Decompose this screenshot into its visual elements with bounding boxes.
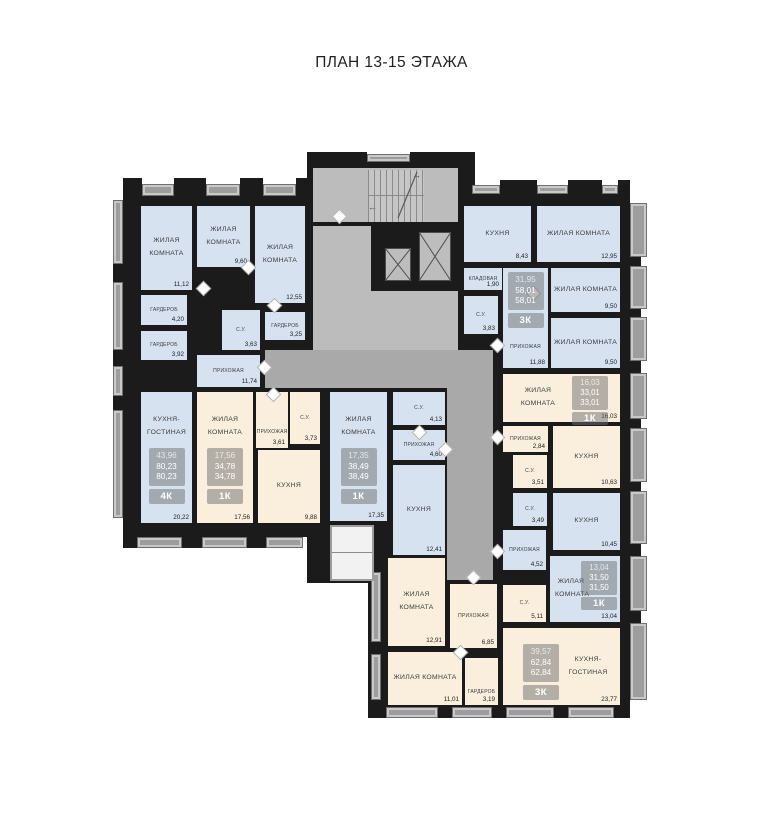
corridor (447, 350, 493, 580)
room-apt4k-hallway: ПРИХОЖАЯ 11,74 (197, 355, 260, 387)
room-apt4k-kitchen-living: КУХНЯ-ГОСТИНАЯ 20,22 43,96 80,23 80,23 4… (141, 392, 192, 523)
room-name-label: ЖИЛАЯ КОМНАТА (517, 385, 559, 411)
room-apt3ka-living-1: ЖИЛАЯ КОМНАТА 12,95 (537, 206, 620, 262)
elevator-shaft-small (385, 248, 411, 281)
room-area-value: 23,77 (601, 696, 617, 703)
room-name-label: КУХНЯ (407, 504, 431, 517)
window-strip (113, 200, 123, 264)
apartment-areas: 17,56 34,78 34,78 (207, 448, 243, 486)
total-area-value: 33,01 (573, 388, 607, 398)
room-area-value: 13,04 (601, 613, 617, 620)
wall-pier (174, 178, 206, 196)
room-area-value: 11,12 (174, 281, 189, 288)
wall-pier (630, 257, 641, 266)
room-area-value: 12,95 (601, 253, 617, 260)
room-area-value: 20,22 (173, 514, 189, 521)
window-strip (602, 185, 618, 194)
room-apt3kb-living-2: ЖИЛАЯ КОМНАТА 11,01 (388, 652, 462, 705)
stair-down-arrow: ← (368, 202, 377, 212)
elevator-lobby (313, 291, 458, 356)
wall-pier (630, 309, 641, 317)
room-area-value: 4,20 (172, 316, 184, 323)
apartment-type-label: 1К (581, 597, 617, 610)
room-area-value: 12,41 (426, 546, 442, 553)
wall-pier (296, 178, 312, 196)
room-area-value: 3,61 (273, 439, 285, 446)
apartment-type-label: 3К (523, 685, 559, 700)
balcony-slab (630, 491, 647, 544)
room-area-value: 3,73 (305, 435, 317, 442)
room-area-value: 9,50 (605, 303, 617, 310)
room-name-label: С.У. (520, 600, 530, 606)
room-apt1kd-kitchen: КУХНЯ 10,45 (553, 493, 620, 550)
room-apt4k-living-2: ЖИЛАЯ КОМНАТА 9,60 (197, 206, 250, 267)
room-area-value: 11,74 (242, 378, 257, 385)
wall-pier (113, 396, 123, 410)
living-area-value: 17,35 (342, 451, 376, 462)
apartment-areas: 43,96 80,23 80,23 (149, 448, 185, 486)
window-strip (206, 184, 240, 196)
window-strip (142, 184, 174, 196)
window-strip (472, 185, 500, 194)
room-area-value: 9,88 (305, 514, 317, 521)
wall-pier (123, 178, 142, 196)
room-name-label: ЖИЛАЯ КОМНАТА (198, 224, 248, 250)
apartment-type-label: 4К (149, 489, 185, 504)
room-area-value: 3,49 (532, 517, 544, 524)
room-area-value: 12,55 (286, 294, 302, 301)
room-name-label: ЖИЛАЯ КОМНАТА (142, 235, 190, 261)
living-area-value: 39,57 (524, 647, 558, 658)
room-apt3kb-hallway: ПРИХОЖАЯ 6,85 (450, 584, 497, 648)
room-apt3ka-living-3: ЖИЛАЯ КОМНАТА 9,50 (551, 318, 620, 368)
room-area-value: 3,83 (483, 325, 495, 332)
room-name-label: ЖИЛАЯ КОМНАТА (547, 228, 610, 241)
room-name-label: ПРИХОЖАЯ (257, 429, 287, 435)
apartment-badge-1k-d: 13,04 31,50 31,50 1К (581, 561, 617, 610)
room-apt1kb-bathroom: С.У. 4,13 (393, 392, 445, 425)
apartment-areas: 39,57 62,84 62,84 (523, 644, 559, 682)
wall-pier (500, 180, 537, 194)
stair-landing-line (368, 195, 424, 196)
wall-pier (182, 537, 202, 548)
total-area-value: 34,78 (208, 462, 242, 473)
room-area-value: 2,84 (533, 443, 545, 450)
room-name-label: КУХНЯ-ГОСТИНАЯ (142, 414, 190, 440)
room-name-label: ПРИХОЖАЯ (509, 547, 540, 553)
corridor (265, 350, 447, 388)
total-area-value: 80,23 (150, 462, 184, 473)
wall-pier (568, 180, 602, 194)
room-name-label: ГАРДЕРОБ (150, 342, 177, 348)
room-apt4k-living-1: ЖИЛАЯ КОМНАТА 11,12 (141, 206, 192, 290)
room-area-value: 3,19 (483, 696, 495, 703)
room-area-value: 17,35 (368, 512, 384, 519)
room-area-value: 10,45 (601, 541, 617, 548)
room-name-label: С.У. (476, 312, 486, 318)
room-apt3ka-living-2: ЖИЛАЯ КОМНАТА 9,50 (551, 268, 620, 312)
wall-pier (630, 544, 641, 556)
living-area-value: 43,96 (150, 451, 184, 462)
room-area-value: 12,91 (426, 637, 442, 644)
room-apt1kc-hallway: ПРИХОЖАЯ 2,84 (503, 426, 548, 452)
room-name-label: С.У. (525, 506, 535, 512)
room-name-label: ПРИХОЖАЯ (510, 436, 541, 442)
room-apt1kb-living: ЖИЛАЯ КОМНАТА 17,35 17,35 38,49 38,49 1К (330, 392, 387, 521)
room-name-label: С.У. (525, 468, 535, 474)
room-area-value: 10,63 (601, 479, 617, 486)
room-area-value: 3,92 (172, 351, 184, 358)
wall-pier (630, 482, 641, 491)
elevator-lobby (313, 226, 371, 296)
total-area-value: 62,84 (524, 658, 558, 669)
room-area-value: 5,11 (531, 613, 543, 620)
window-strip (386, 707, 438, 718)
window-strip (506, 707, 554, 718)
room-area-value: 3,51 (532, 479, 544, 486)
room-apt1kc-living: ЖИЛАЯ КОМНАТА 16,03 16,03 33,01 33,01 1К (503, 374, 620, 422)
wall-pier (240, 178, 263, 196)
room-name-label: ЖИЛАЯ КОМНАТА (554, 337, 617, 350)
room-apt4k-living-3: ЖИЛАЯ КОМНАТА 12,55 (255, 206, 305, 303)
room-area-value: 1,90 (487, 281, 499, 288)
room-apt4k-wardrobe-3: ГАРДЕРОБ 3,25 (265, 312, 305, 340)
window-strip (113, 282, 123, 350)
wall-pier (307, 152, 367, 162)
room-apt3ka-bathroom: С.У. 3,83 (464, 296, 498, 334)
apartment-type-label: 1К (341, 489, 377, 504)
wall-pier (113, 350, 123, 366)
room-name-label: КУХНЯ (574, 451, 598, 464)
room-name-label: С.У. (414, 405, 424, 411)
living-area-value: 17,56 (208, 451, 242, 462)
window-strip (137, 537, 182, 548)
total-area-value: 31,50 (582, 573, 616, 583)
balcony-slab (630, 373, 647, 419)
apartment-areas: 13,04 31,50 31,50 (581, 561, 617, 595)
room-apt1kd-living: ЖИЛАЯ КОМНАТА 13,04 13,04 31,50 31,50 1К (550, 556, 620, 622)
sale-area-value: 34,78 (208, 472, 242, 483)
room-name-label: ПРИХОЖАЯ (404, 442, 435, 448)
apartment-badge-1k-a: 17,56 34,78 34,78 1К (207, 448, 243, 504)
room-area-value: 6,85 (482, 639, 494, 646)
room-name-label: КУХНЯ-ГОСТИНАЯ (566, 654, 610, 680)
window-strip (367, 154, 410, 162)
apartment-type-label: 3К (508, 313, 544, 328)
room-apt1ka-kitchen: КУХНЯ 9,88 (258, 450, 320, 523)
window-strip (113, 410, 123, 518)
balcony-slab (630, 266, 647, 309)
apartment-badge-3k-b: 39,57 62,84 62,84 3К (523, 644, 559, 700)
apartment-areas: 31,95 58,01 58,01 (508, 272, 544, 310)
window-strip (371, 572, 381, 642)
wall-pier (630, 419, 641, 428)
room-area-value: 8,43 (516, 253, 528, 260)
page-title: ПЛАН 13-15 ЭТАЖА (0, 54, 783, 72)
room-name-label: ЖИЛАЯ КОМНАТА (393, 672, 456, 685)
balcony (330, 525, 374, 581)
room-name-label: ГАРДЕРОБ (150, 307, 177, 313)
room-area-value: 17,56 (234, 514, 250, 521)
room-name-label: КУХНЯ (574, 515, 598, 528)
room-name-label: ПРИХОЖАЯ (458, 613, 489, 619)
window-strip (568, 707, 614, 718)
apartment-badge-1k-b: 17,35 38,49 38,49 1К (341, 448, 377, 504)
balcony-slab (630, 623, 647, 700)
wall-pier (618, 180, 630, 194)
room-name-label: ГАРДЕРОБ (271, 323, 298, 329)
room-name-label: С.У. (236, 327, 246, 333)
apartment-badge-3k-a: 31,95 58,01 58,01 3К (508, 272, 544, 328)
wall-pier (113, 264, 123, 282)
apartment-type-label: 1К (572, 412, 608, 425)
room-name-label: КУХНЯ (277, 480, 301, 493)
sale-area-value: 62,84 (524, 668, 558, 679)
wall-pier (630, 361, 641, 373)
room-area-value: 3,25 (290, 331, 302, 338)
room-apt1kd-bathroom: С.У. 3,49 (513, 493, 547, 526)
room-area-value: 9,50 (605, 359, 617, 366)
room-apt1kc-bathroom: С.У. 3,51 (513, 455, 547, 488)
sale-area-value: 33,01 (573, 398, 607, 408)
window-strip (371, 654, 381, 700)
room-area-value: 4,13 (430, 416, 442, 423)
room-name-label: ЖИЛАЯ КОМНАТА (389, 589, 443, 615)
apartment-badge-1k-c: 16,03 33,01 33,01 1К (572, 376, 608, 425)
wall-pier (630, 611, 641, 623)
room-area-value: 3,63 (245, 341, 257, 348)
living-area-value: 13,04 (582, 563, 616, 573)
room-name-label: ПРИХОЖАЯ (510, 344, 541, 350)
room-apt3ka-kitchen: КУХНЯ 8,43 (464, 206, 531, 262)
total-area-value: 38,49 (342, 462, 376, 473)
total-area-value: 58,01 (509, 286, 543, 297)
room-name-label: ЖИЛАЯ КОМНАТА (198, 414, 251, 440)
window-strip (113, 366, 123, 396)
window-strip (452, 707, 492, 718)
window-strip (266, 537, 303, 548)
living-area-value: 31,95 (509, 275, 543, 286)
wall-pier (410, 152, 475, 162)
room-apt4k-wardrobe-2: ГАРДЕРОБ 3,92 (141, 331, 187, 360)
living-area-value: 16,03 (573, 378, 607, 388)
room-apt3kb-living-1: ЖИЛАЯ КОМНАТА 12,91 (388, 558, 445, 646)
sale-area-value: 80,23 (150, 472, 184, 483)
wall-pier (123, 537, 137, 548)
wall-pier (247, 537, 266, 548)
room-name-label: КУХНЯ (485, 228, 509, 241)
room-apt1kd-hallway: ПРИХОЖАЯ 4,52 (503, 530, 546, 570)
balcony-slab (630, 203, 647, 257)
stair-up-arrow: → (412, 170, 421, 180)
room-apt3ka-hallway: ПРИХОЖАЯ 11,88 31,95 58,01 58,01 3К (503, 268, 548, 368)
room-apt4k-wardrobe-1: ГАРДЕРОБ 4,20 (141, 295, 187, 325)
elevator-shaft-large (419, 232, 451, 281)
floor-plan: ПЛАН 13-15 ЭТАЖА (0, 0, 783, 828)
room-area-value: 11,01 (444, 696, 459, 703)
room-name-label: ПРИХОЖАЯ (213, 368, 244, 374)
balcony-divider (332, 552, 372, 553)
balcony-slab (630, 428, 647, 482)
room-apt1kb-kitchen: КУХНЯ 12,41 (393, 465, 445, 555)
room-apt3ka-storage: КЛАДОВАЯ 1,90 (464, 268, 502, 290)
room-apt3kb-wardrobe: ГАРДЕРОБ 3,19 (465, 658, 498, 705)
room-apt4k-bathroom: С.У. 3,63 (222, 310, 260, 350)
room-name-label: ЖИЛАЯ КОМНАТА (554, 284, 617, 297)
room-name-label: ЖИЛАЯ КОМНАТА (331, 414, 385, 440)
sale-area-value: 31,50 (582, 583, 616, 593)
room-name-label: ГАРДЕРОБ (468, 689, 495, 695)
room-apt3kb-bathroom: С.У. 5,11 (503, 585, 546, 622)
apartment-areas: 17,35 38,49 38,49 (341, 448, 377, 486)
window-strip (537, 185, 568, 194)
room-apt3kb-kitchen-living: КУХНЯ-ГОСТИНАЯ 23,77 39,57 62,84 62,84 3… (503, 628, 620, 705)
room-apt1ka-bathroom: С.У. 3,73 (290, 392, 320, 444)
sale-area-value: 58,01 (509, 296, 543, 307)
window-strip (263, 184, 296, 196)
room-area-value: 4,52 (531, 561, 543, 568)
room-area-value: 11,88 (530, 359, 545, 366)
apartment-type-label: 1К (207, 489, 243, 504)
room-apt1ka-living: ЖИЛАЯ КОМНАТА 17,56 17,56 34,78 34,78 1К (197, 392, 253, 523)
apartment-areas: 16,03 33,01 33,01 (572, 376, 608, 410)
room-name-label: ЖИЛАЯ КОМНАТА (256, 242, 304, 268)
apartment-badge-4k: 43,96 80,23 80,23 4К (149, 448, 185, 504)
room-name-label: С.У. (300, 415, 310, 421)
window-strip (202, 537, 247, 548)
balcony-slab (630, 317, 647, 361)
room-apt1kc-kitchen: КУХНЯ 10,63 (553, 426, 620, 488)
balcony-slab (630, 556, 647, 611)
sale-area-value: 38,49 (342, 472, 376, 483)
